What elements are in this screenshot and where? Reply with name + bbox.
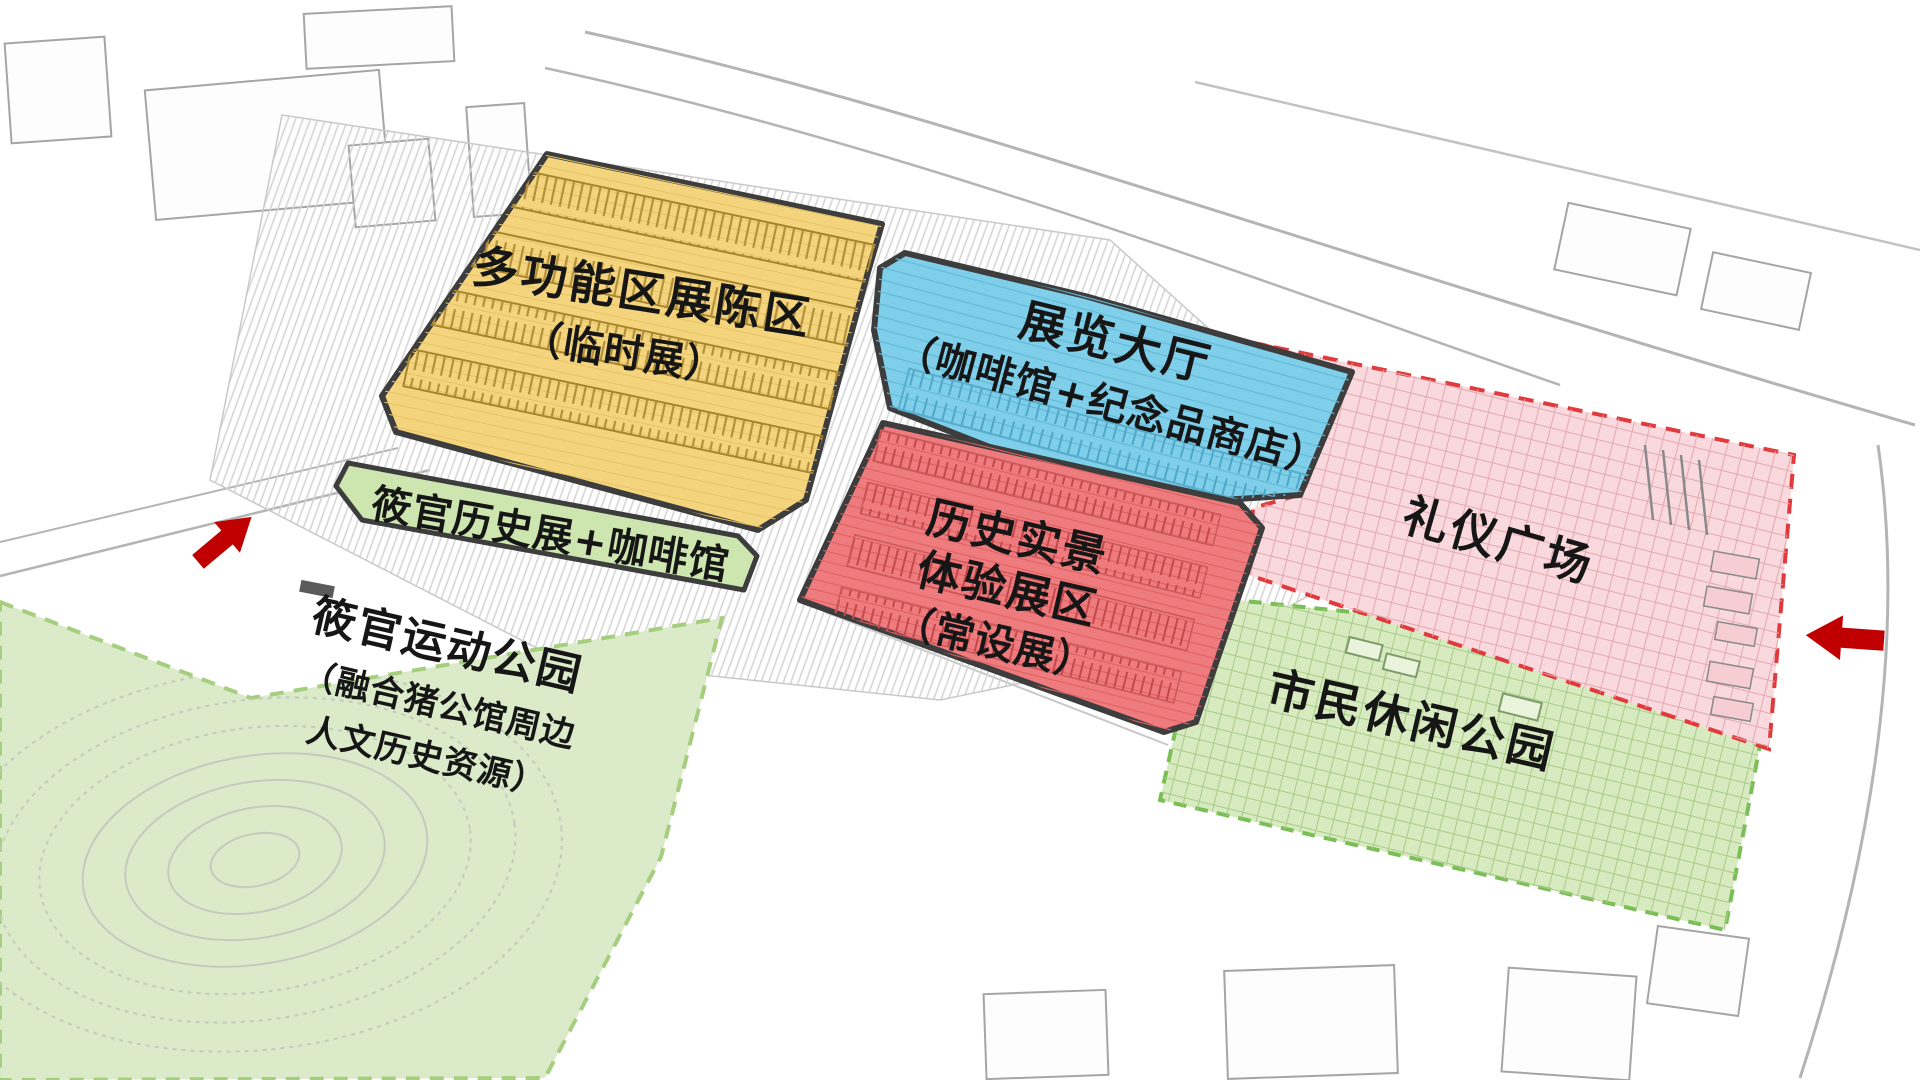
site-plan-stage: 多功能区展陈区 （临时展） 展览大厅 （咖啡馆+纪念品商店） 筱官历史展+咖啡馆… <box>0 0 1920 1080</box>
site-plan-svg: 多功能区展陈区 （临时展） 展览大厅 （咖啡馆+纪念品商店） 筱官历史展+咖啡馆… <box>0 0 1920 1080</box>
entrance-arrow-right <box>1804 613 1885 663</box>
